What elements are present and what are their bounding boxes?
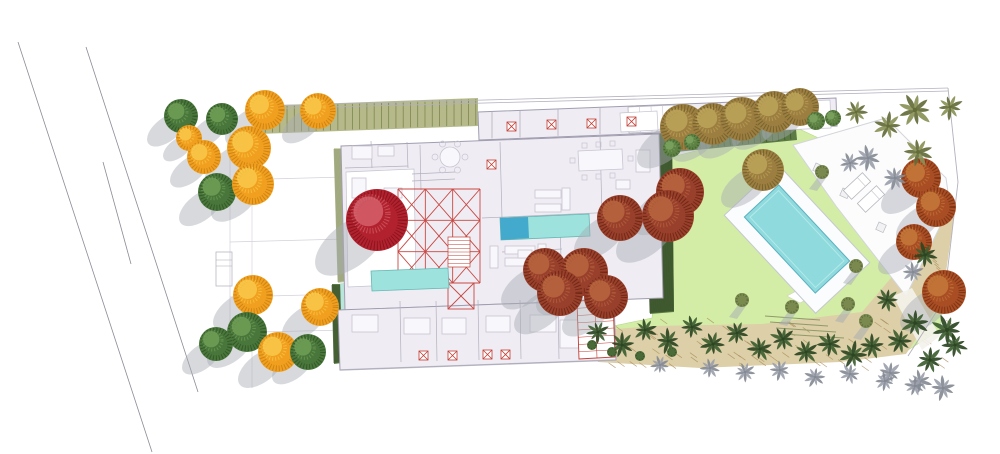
furniture-rect (352, 315, 378, 332)
palm-center (709, 367, 712, 370)
palm-center (953, 343, 956, 346)
entry-gate (216, 252, 232, 286)
red-x-marker (507, 122, 516, 131)
tree-rb (916, 187, 956, 227)
palm-gp (804, 368, 826, 388)
red-x-marker (501, 350, 510, 359)
furniture-rect (616, 180, 630, 189)
tree-o (300, 93, 336, 129)
palm-center (666, 339, 669, 342)
palm-center (855, 111, 858, 114)
palm-center (779, 369, 782, 372)
tree-o (232, 163, 274, 205)
tree-sg (807, 112, 825, 130)
palm-center (659, 364, 661, 366)
furniture-rect (442, 318, 466, 334)
palm-og (898, 94, 931, 127)
palm-center (886, 124, 889, 127)
tree-o (245, 90, 285, 130)
tree-g (199, 327, 233, 361)
red-x-marker (547, 120, 556, 129)
palm-center (914, 385, 917, 388)
tree-m (642, 190, 694, 242)
furniture-rect (535, 190, 561, 198)
palm-center (736, 332, 739, 335)
red-x-marker (448, 351, 457, 360)
palm-center (885, 298, 888, 301)
living-pool-deep (500, 217, 529, 240)
palm-center (781, 337, 784, 340)
gravel-shrub (587, 340, 597, 350)
palm-center (948, 105, 951, 108)
palm-center (644, 329, 647, 332)
palm-center (851, 353, 854, 356)
tree-o (301, 288, 339, 326)
furniture-rect (535, 204, 561, 212)
red-x-marker (487, 160, 496, 169)
red-x-marker (587, 119, 596, 128)
palm-center (884, 380, 887, 383)
tree-m (584, 275, 628, 319)
tree-g (198, 173, 236, 211)
tree-sg (663, 139, 681, 157)
palm-center (923, 253, 926, 256)
palm-gp (904, 377, 924, 396)
palm-gp (931, 375, 955, 402)
tree-m (597, 195, 643, 241)
palm-center (913, 321, 917, 325)
palm-center (711, 342, 714, 345)
gravel-shrub (635, 351, 645, 361)
red-x-marker (419, 351, 428, 360)
palm-center (928, 358, 931, 361)
palm-center (828, 342, 831, 345)
palm-dg (916, 347, 942, 373)
site-plan-canvas (0, 0, 1000, 454)
gravel-hatch (941, 357, 948, 362)
furniture-rect (490, 246, 498, 268)
corner-block (620, 111, 658, 132)
dining-table-long (578, 149, 623, 171)
fence-top (252, 88, 948, 106)
site-plan (0, 0, 1000, 454)
palm-center (691, 326, 694, 329)
red-x-marker (483, 350, 492, 359)
palm-center (893, 176, 896, 179)
tree-highlight (686, 136, 694, 144)
palm-center (898, 339, 901, 342)
road-line (18, 42, 152, 452)
tree-b (742, 149, 784, 191)
gravel-shrub (667, 347, 677, 357)
red-x-marker (627, 117, 636, 126)
palm-center (916, 150, 920, 154)
palm-center (913, 108, 917, 112)
gravel-shrub (607, 347, 617, 357)
palm-center (804, 350, 807, 353)
tree-sg (684, 134, 700, 150)
tree-r (346, 189, 408, 251)
palm-og (845, 101, 868, 125)
palm-center (941, 386, 944, 389)
tree-sg (825, 110, 841, 126)
tree-g (206, 103, 238, 135)
palm-center (870, 344, 873, 347)
palm-center (849, 373, 852, 376)
furniture-rect (352, 146, 372, 159)
palm-center (620, 343, 623, 346)
gravel-hatch (862, 366, 869, 371)
palm-center (758, 347, 761, 350)
palm-center (597, 331, 600, 334)
stairs (448, 237, 470, 267)
fence-top (252, 91, 948, 109)
palm-center (912, 271, 915, 274)
tree-rb (922, 270, 966, 314)
palm-center (814, 376, 817, 379)
palm-center (849, 162, 852, 165)
tree-highlight (210, 107, 225, 122)
dining-table-round (440, 147, 460, 167)
furniture-rect (486, 316, 510, 332)
palm-center (744, 371, 747, 374)
furniture-rect (562, 188, 570, 210)
tree-highlight (827, 112, 835, 120)
palm-center (945, 328, 949, 332)
furniture-rect (378, 146, 394, 156)
palm-gp (839, 364, 860, 385)
tree-o (233, 275, 273, 315)
furniture-rect (404, 318, 430, 334)
palm-center (866, 156, 869, 159)
road-line (103, 162, 131, 264)
tree-m (537, 270, 583, 316)
tree-o (187, 140, 221, 174)
courtyard-pool (371, 268, 449, 291)
gravel-hatch (820, 362, 827, 367)
gravel-hatch (609, 363, 616, 368)
tree-g (290, 334, 326, 370)
